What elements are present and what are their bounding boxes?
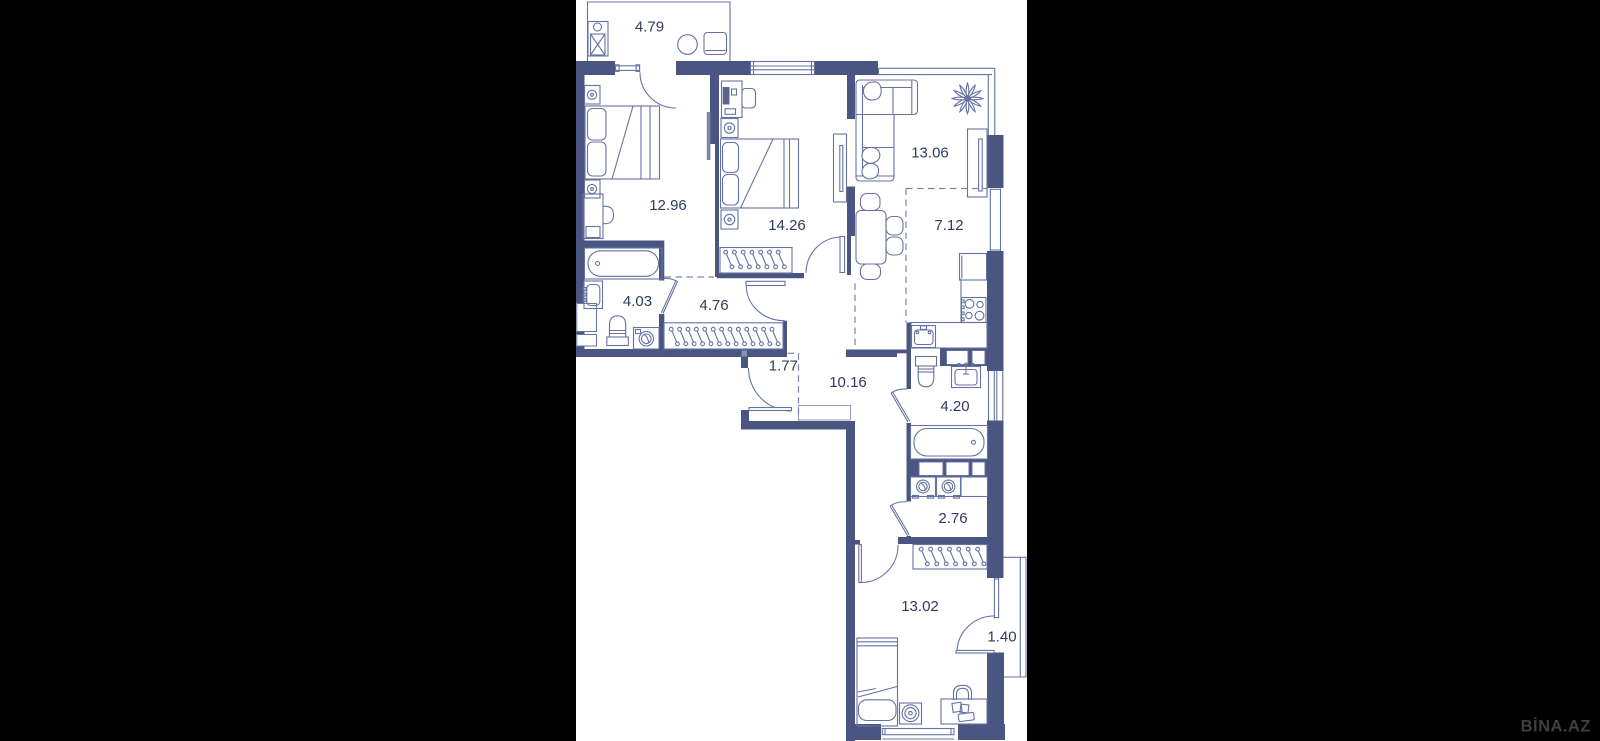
svg-text:BİNA.AZ: BİNA.AZ: [1521, 718, 1591, 736]
svg-text:14.26: 14.26: [768, 217, 806, 234]
svg-text:13.06: 13.06: [911, 144, 949, 161]
svg-text:4.79: 4.79: [635, 18, 664, 35]
svg-text:13.02: 13.02: [901, 598, 939, 615]
svg-text:4.03: 4.03: [623, 293, 652, 310]
svg-text:4.20: 4.20: [940, 398, 969, 415]
svg-text:10.16: 10.16: [829, 374, 867, 391]
svg-text:7.12: 7.12: [934, 217, 963, 234]
svg-text:1.40: 1.40: [987, 628, 1016, 645]
svg-text:12.96: 12.96: [649, 197, 687, 214]
svg-text:2.76: 2.76: [938, 510, 967, 527]
svg-text:4.76: 4.76: [699, 297, 728, 314]
svg-text:1.77: 1.77: [769, 357, 798, 374]
